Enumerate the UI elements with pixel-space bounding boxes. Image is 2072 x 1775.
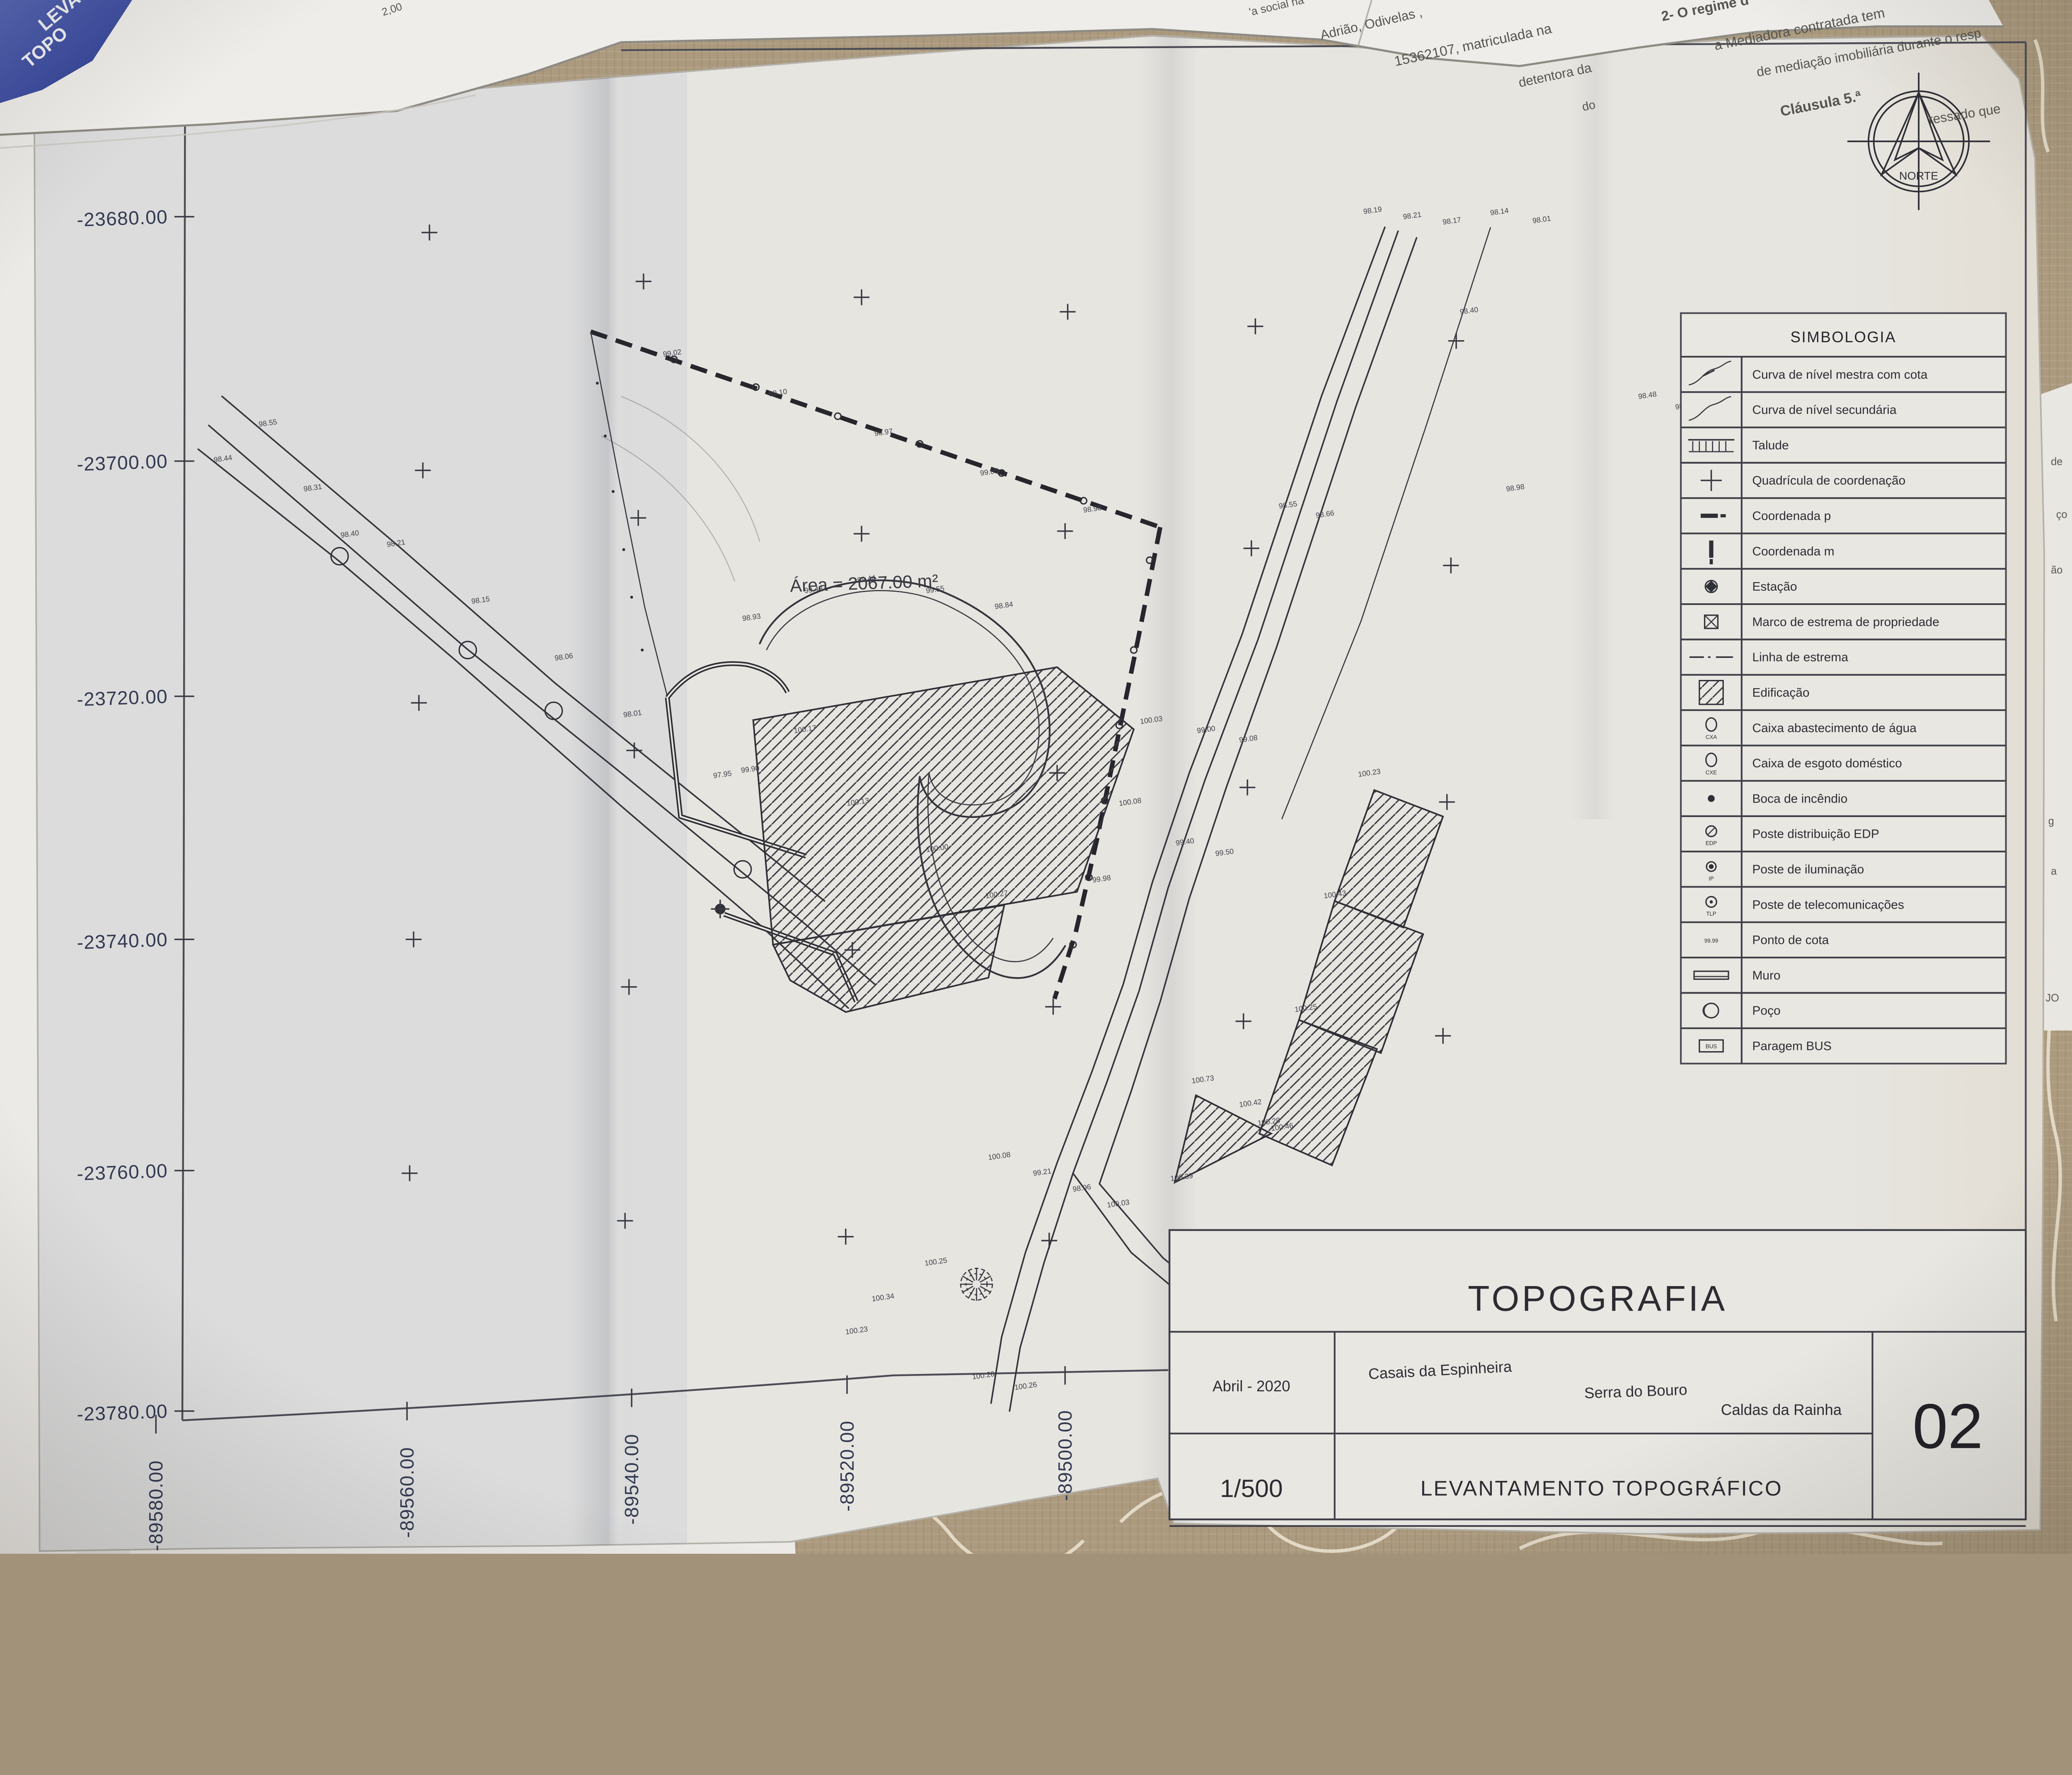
- vignette: [0, 0, 2072, 1554]
- topographic-survey-photo: deçoãogaJO LEVATOPO 98.5598.4498.3198.21…: [0, 0, 2072, 1554]
- photo-scene: deçoãogaJO LEVATOPO 98.5598.4498.3198.21…: [0, 0, 2072, 1554]
